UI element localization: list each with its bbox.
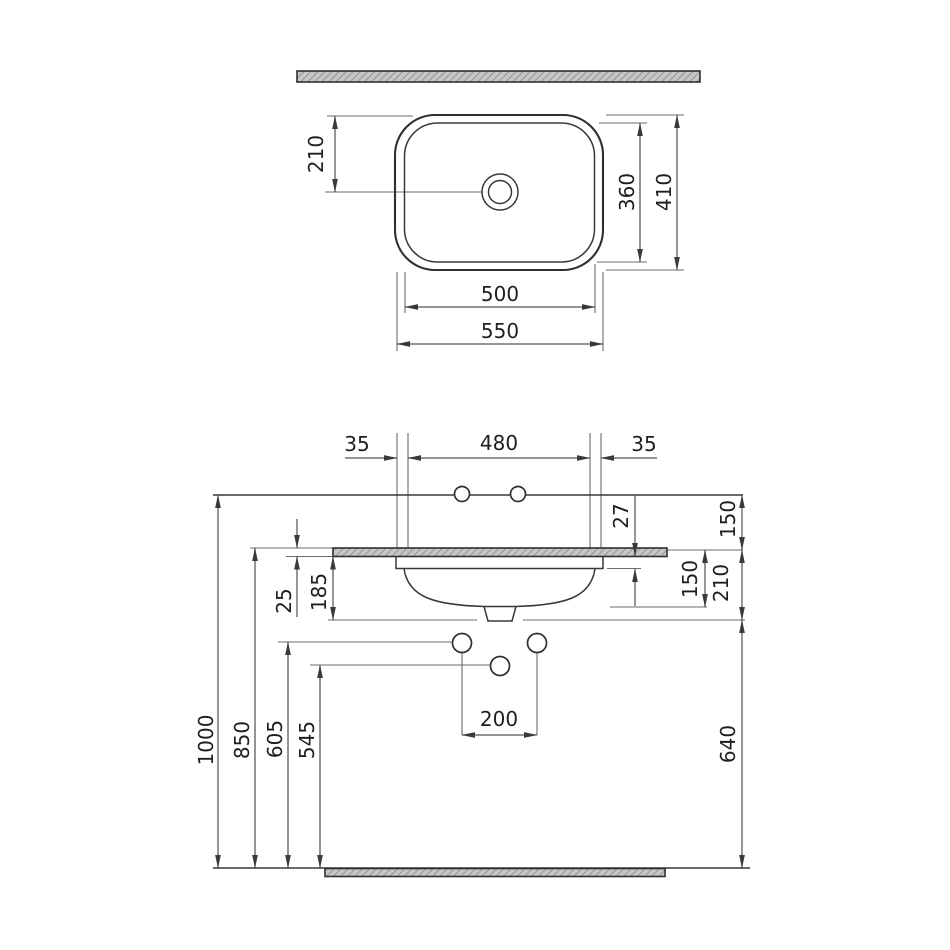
counter-edge-plan-bar <box>297 71 700 82</box>
dim-drain-to-floor: 640 <box>716 620 742 868</box>
dim-supply-height: 605 <box>263 642 288 868</box>
dim-label-supply-height: 605 <box>263 720 287 758</box>
dim-counter-to-drain: 210 <box>709 550 742 620</box>
dim-label-basin-depth: 185 <box>307 573 331 611</box>
technical-drawing-page: 210 360 410 500 550 <box>0 0 950 950</box>
dim-label-wall-to-counter: 150 <box>716 500 740 538</box>
dim-label-bowl-depth: 150 <box>678 560 702 598</box>
dim-label-counter-thickness: 25 <box>272 588 296 613</box>
supply-hole-right <box>528 634 547 653</box>
dim-label-left-edge-offset: 35 <box>344 432 369 456</box>
top-view: 210 360 410 500 550 <box>297 71 700 351</box>
dim-label-total-height: 1000 <box>194 715 218 766</box>
dim-label-drain-offset: 210 <box>304 135 328 173</box>
dim-total-height: 1000 <box>194 495 218 868</box>
dim-inner-width: 500 <box>405 264 595 313</box>
dim-label-outer-depth: 410 <box>652 173 676 211</box>
drain-outer-circle <box>482 174 518 210</box>
drain-inner-circle <box>489 181 512 204</box>
faucet-hole-right <box>511 487 526 502</box>
dim-label-inner-depth: 360 <box>615 173 639 211</box>
dim-supply-spacing: 200 <box>462 707 537 735</box>
faucet-hole-left <box>455 487 470 502</box>
dim-label-counter-to-drain: 210 <box>709 564 733 602</box>
dim-bowl-depth: 150 <box>678 550 705 607</box>
dim-label-drain-height: 545 <box>295 721 319 759</box>
dim-label-supply-spacing: 200 <box>480 707 518 731</box>
drain-outlet-section <box>484 607 516 622</box>
basin-bowl-section <box>404 569 595 607</box>
dim-basin-depth-below-counter: 185 <box>307 557 333 621</box>
dim-drain-center-offset: 210 <box>304 116 482 192</box>
countertop-section-bar <box>333 548 667 557</box>
basin-rim-section <box>396 557 603 569</box>
supply-hole-left <box>453 634 472 653</box>
dim-label-counter-height: 850 <box>230 721 254 759</box>
washbasin-drawing-svg: 210 360 410 500 550 <box>0 0 950 950</box>
dim-label-right-edge-offset: 35 <box>631 432 656 456</box>
dim-wall-line-to-counter: 150 <box>716 495 742 550</box>
front-view: 35 480 35 27 150 <box>194 431 750 877</box>
dim-label-outer-width: 550 <box>481 319 519 343</box>
dim-label-rim-drop: 27 <box>609 503 633 528</box>
dim-fixing-holes: 35 480 35 <box>344 431 657 548</box>
floor-hatch-bar <box>325 869 665 877</box>
dim-inner-depth: 360 <box>597 123 647 262</box>
dim-counter-height: 850 <box>230 548 255 868</box>
dim-label-inner-width: 500 <box>481 282 519 306</box>
dim-counter-thickness: 25 <box>272 519 297 617</box>
dim-label-drain-to-floor: 640 <box>716 725 740 763</box>
dim-drain-height: 545 <box>295 665 320 868</box>
waste-hole-center <box>491 657 510 676</box>
dim-label-fixing-span: 480 <box>480 431 518 455</box>
